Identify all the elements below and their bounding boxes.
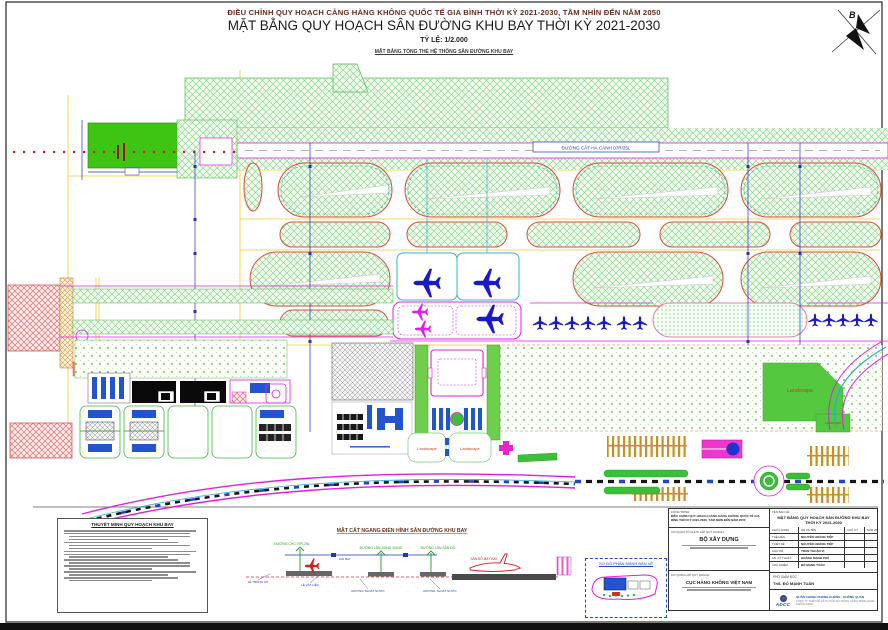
tb-drawing-cell: TÊN BẢN VẼ: MẶT BẰNG QUY HOẠCH SÂN ĐƯỜNG… <box>769 509 877 527</box>
reserved-land-hatch-2 <box>10 423 72 458</box>
sign-name: NGUYỄN HOÀNG TIỆP <box>798 534 844 540</box>
tb-drawing-name: MẶT BẰNG QUY HOẠCH SÂN ĐƯỜNG KHU BAY THỜ… <box>772 515 875 525</box>
current-sheet-highlight <box>604 578 626 590</box>
terminal-core <box>415 345 500 440</box>
sign-signature <box>844 555 864 561</box>
sign-signature <box>844 548 864 554</box>
notes-line <box>69 568 151 570</box>
section-label: ĐƯỜNG LĂN SÂN ĐỖ <box>421 545 456 550</box>
notes-line <box>64 554 190 556</box>
runway-strip-upper <box>237 128 888 143</box>
tb-director-title: PHÓ GIÁM ĐỐC <box>773 575 874 579</box>
notes-line <box>69 580 151 582</box>
drawing-title: MẶT BẰNG QUY HOẠCH SÂN ĐƯỜNG KHU BAY THỜ… <box>10 18 878 35</box>
notes-line <box>64 530 196 532</box>
adcc-logo: ADCC <box>770 594 796 607</box>
section-marker <box>331 553 336 557</box>
sign-signature <box>844 541 864 547</box>
notes-line <box>64 565 190 567</box>
station-building <box>702 440 742 458</box>
notes-line <box>69 536 190 538</box>
cargo-buildings-panel <box>332 402 412 454</box>
project-title: ĐIỀU CHỈNH QUY HOẠCH CẢNG HÀNG KHÔNG QUỐ… <box>10 8 878 17</box>
notes-line <box>64 577 178 579</box>
sheet-header: ĐIỀU CHỈNH QUY HOẠCH CẢNG HÀNG KHÔNG QUỐ… <box>10 8 878 55</box>
sign-header-role: CHỨC DANH <box>770 527 798 533</box>
section-label-apron: SÂN ĐỖ MÁY BAY <box>471 556 499 561</box>
plan-subtitle: MẶT BẰNG TỔNG THỂ HỆ THỐNG SÂN ĐƯỜNG KHU… <box>10 49 878 55</box>
tb-org-address-line <box>690 547 748 548</box>
notes-line <box>69 562 190 564</box>
terminal-reserve-hatch <box>332 343 413 400</box>
notes-line <box>69 556 168 558</box>
fence-symbol <box>557 557 571 575</box>
tb-org-name: BỘ XÂY DỰNG <box>671 537 767 543</box>
bottom-bar <box>0 623 888 630</box>
tb-agency-address-line <box>682 587 757 588</box>
notes-box: THUYẾT MINH QUY HOẠCH KHU BAY <box>57 518 208 613</box>
section-label: MƯƠNG THOÁT NƯỚC <box>423 588 457 593</box>
sign-row: CHỦ TRÌ TRẦN THUẬN VỊ <box>770 547 877 554</box>
facility-plots-row <box>80 406 296 458</box>
landscape-label: Landscape <box>460 446 480 451</box>
tb-agency-name: CỤC HÀNG KHÔNG VIỆT NAM <box>671 580 767 585</box>
green-area-left <box>75 340 287 378</box>
section-label: MƯƠNG THOÁT NƯỚC <box>351 588 385 593</box>
sign-name: ĐỖ MẠNH TUẤN <box>798 562 844 568</box>
sign-header-row: CHỨC DANH HỌ VÀ TÊN CHỮ KÝ NĂM 2025 <box>770 527 877 533</box>
sign-row: THIẾT KẾ NGUYỄN HOÀNG TIỆP <box>770 540 877 547</box>
tb-sign-table: CHỨC DANH HỌ VÀ TÊN CHỮ KÝ NĂM 2025 THỂ … <box>769 527 877 572</box>
title-block: CÔNG TRÌNH: ĐIỀU CHỈNH QUY HOẠCH CẢNG HÀ… <box>668 508 878 611</box>
key-map-cell <box>640 581 650 589</box>
notes-title: THUYẾT MINH QUY HOẠCH KHU BAY <box>64 522 201 527</box>
tb-org-cell: CƠ QUAN TỔ CHỨC LẬP QUY HOẠCH: BỘ XÂY DỰ… <box>669 527 769 570</box>
drawing-sheet: ĐƯỜNG CẤT HẠ CÁNH 07R/25L <box>0 0 888 630</box>
graded-strip-hatch <box>185 78 668 128</box>
sign-name: HOÀNG MẠNH PHÚ <box>798 555 844 561</box>
dimension-label-box <box>125 168 139 175</box>
notes-line <box>69 539 168 541</box>
notes-line <box>64 571 196 573</box>
sheet-key-map <box>588 566 664 610</box>
section-label: DẢI BAY <box>339 556 351 561</box>
notes-line <box>64 551 196 553</box>
tb-company-cell: ADCC QUÂN CHỦNG PHÒNG KHÔNG - KHÔNG QUÂN… <box>769 589 877 611</box>
key-map-cell <box>628 581 638 589</box>
sign-year <box>864 562 877 568</box>
tb-company-line1: QUÂN CHỦNG PHÒNG KHÔNG - KHÔNG QUÂN <box>796 595 875 599</box>
notes-line <box>69 548 151 550</box>
section-label: ĐƯỜNG LĂN SONG SONG <box>360 545 403 550</box>
scale-label: TỶ LỆ: 1/2.000 <box>10 37 878 46</box>
service-road-hatch <box>60 278 73 368</box>
tb-director-name: ThS. ĐỖ MẠNH TUẤN <box>773 581 874 586</box>
sign-row: THỂ HIỆN NGUYỄN HOÀNG TIỆP <box>770 533 877 540</box>
landscape-label: Landscape <box>825 421 842 425</box>
sign-role: CHỦ TRÌ <box>770 548 798 554</box>
sign-year <box>864 541 877 547</box>
runway-end-pavement <box>88 123 177 168</box>
tb-company-line2: CÔNG TY THIẾT KẾ VÀ TƯ VẤN XÂY DỰNG CÔNG… <box>796 600 875 606</box>
key-map-red-mark <box>612 592 620 596</box>
sign-role: CN. KỸ THUẬT <box>770 555 798 561</box>
sign-year <box>864 548 877 554</box>
sign-row: CN. KỸ THUẬT HOÀNG MẠNH PHÚ <box>770 554 877 561</box>
sign-header-signature: CHỮ KÝ <box>844 527 864 533</box>
sign-year <box>864 555 877 561</box>
adcc-logo-icon <box>780 595 787 602</box>
sign-year <box>864 534 877 540</box>
tb-org-label: CƠ QUAN TỔ CHỨC LẬP QUY HOẠCH: <box>671 530 767 534</box>
sign-name: NGUYỄN HOÀNG TIỆP <box>798 541 844 547</box>
notes-line <box>69 574 168 576</box>
sign-row: CHỦ NHIỆM ĐỖ MẠNH TUẤN <box>770 561 877 568</box>
sheet-key-inset: SƠ ĐỒ PHÂN MẢNH BẢN VẼ <box>585 558 667 618</box>
notes-line <box>64 542 178 544</box>
tb-director-cell: PHÓ GIÁM ĐỐC ThS. ĐỖ MẠNH TUẤN <box>769 572 877 589</box>
reserved-land-hatch <box>8 285 60 351</box>
landscape-label: Landscape <box>417 446 437 451</box>
section-marker <box>403 553 408 557</box>
runway-label: ĐƯỜNG CẤT HẠ CÁNH 07R/25L <box>561 144 630 150</box>
sign-role: THIẾT KẾ <box>770 541 798 547</box>
notes-line <box>69 545 190 547</box>
tb-org-address-line <box>682 545 757 546</box>
sign-signature <box>844 534 864 540</box>
adcc-logo-text: ADCC <box>770 602 796 607</box>
apron-island-dotted <box>653 303 807 337</box>
sign-name: TRẦN THUẬN VỊ <box>798 548 844 554</box>
sign-role: CHỦ NHIỆM <box>770 562 798 568</box>
tb-agency-cell: CƠ QUAN LẬP QUY HOẠCH: CỤC HÀNG KHÔNG VI… <box>669 570 769 611</box>
landscape-label: Landscape <box>787 388 813 394</box>
tb-agency-address-line <box>687 589 750 590</box>
section-label: ĐƯỜNG CHC 07R-25L <box>274 541 310 546</box>
roundabout <box>754 466 784 496</box>
notes-line <box>64 559 178 561</box>
sign-role: THỂ HIỆN <box>770 534 798 540</box>
tb-project-name: ĐIỀU CHỈNH QUY HOẠCH CẢNG HÀNG KHÔNG QUỐ… <box>671 514 767 522</box>
sign-header-year: NĂM 2025 <box>864 527 877 533</box>
sign-header-name: HỌ VÀ TÊN <box>798 527 844 533</box>
tb-project-cell: CÔNG TRÌNH: ĐIỀU CHỈNH QUY HOẠCH CẢNG HÀ… <box>669 509 769 527</box>
cross-section-title: MẶT CẮT NGANG ĐIỂN HÌNH SÂN ĐƯỜNG KHU BA… <box>337 526 468 534</box>
notes-text-lines <box>64 530 201 581</box>
sign-signature <box>844 562 864 568</box>
tb-agency-label: CƠ QUAN LẬP QUY HOẠCH: <box>671 573 767 577</box>
tb-drawing-label: TÊN BẢN VẼ: <box>772 510 875 514</box>
notes-line <box>64 533 190 535</box>
